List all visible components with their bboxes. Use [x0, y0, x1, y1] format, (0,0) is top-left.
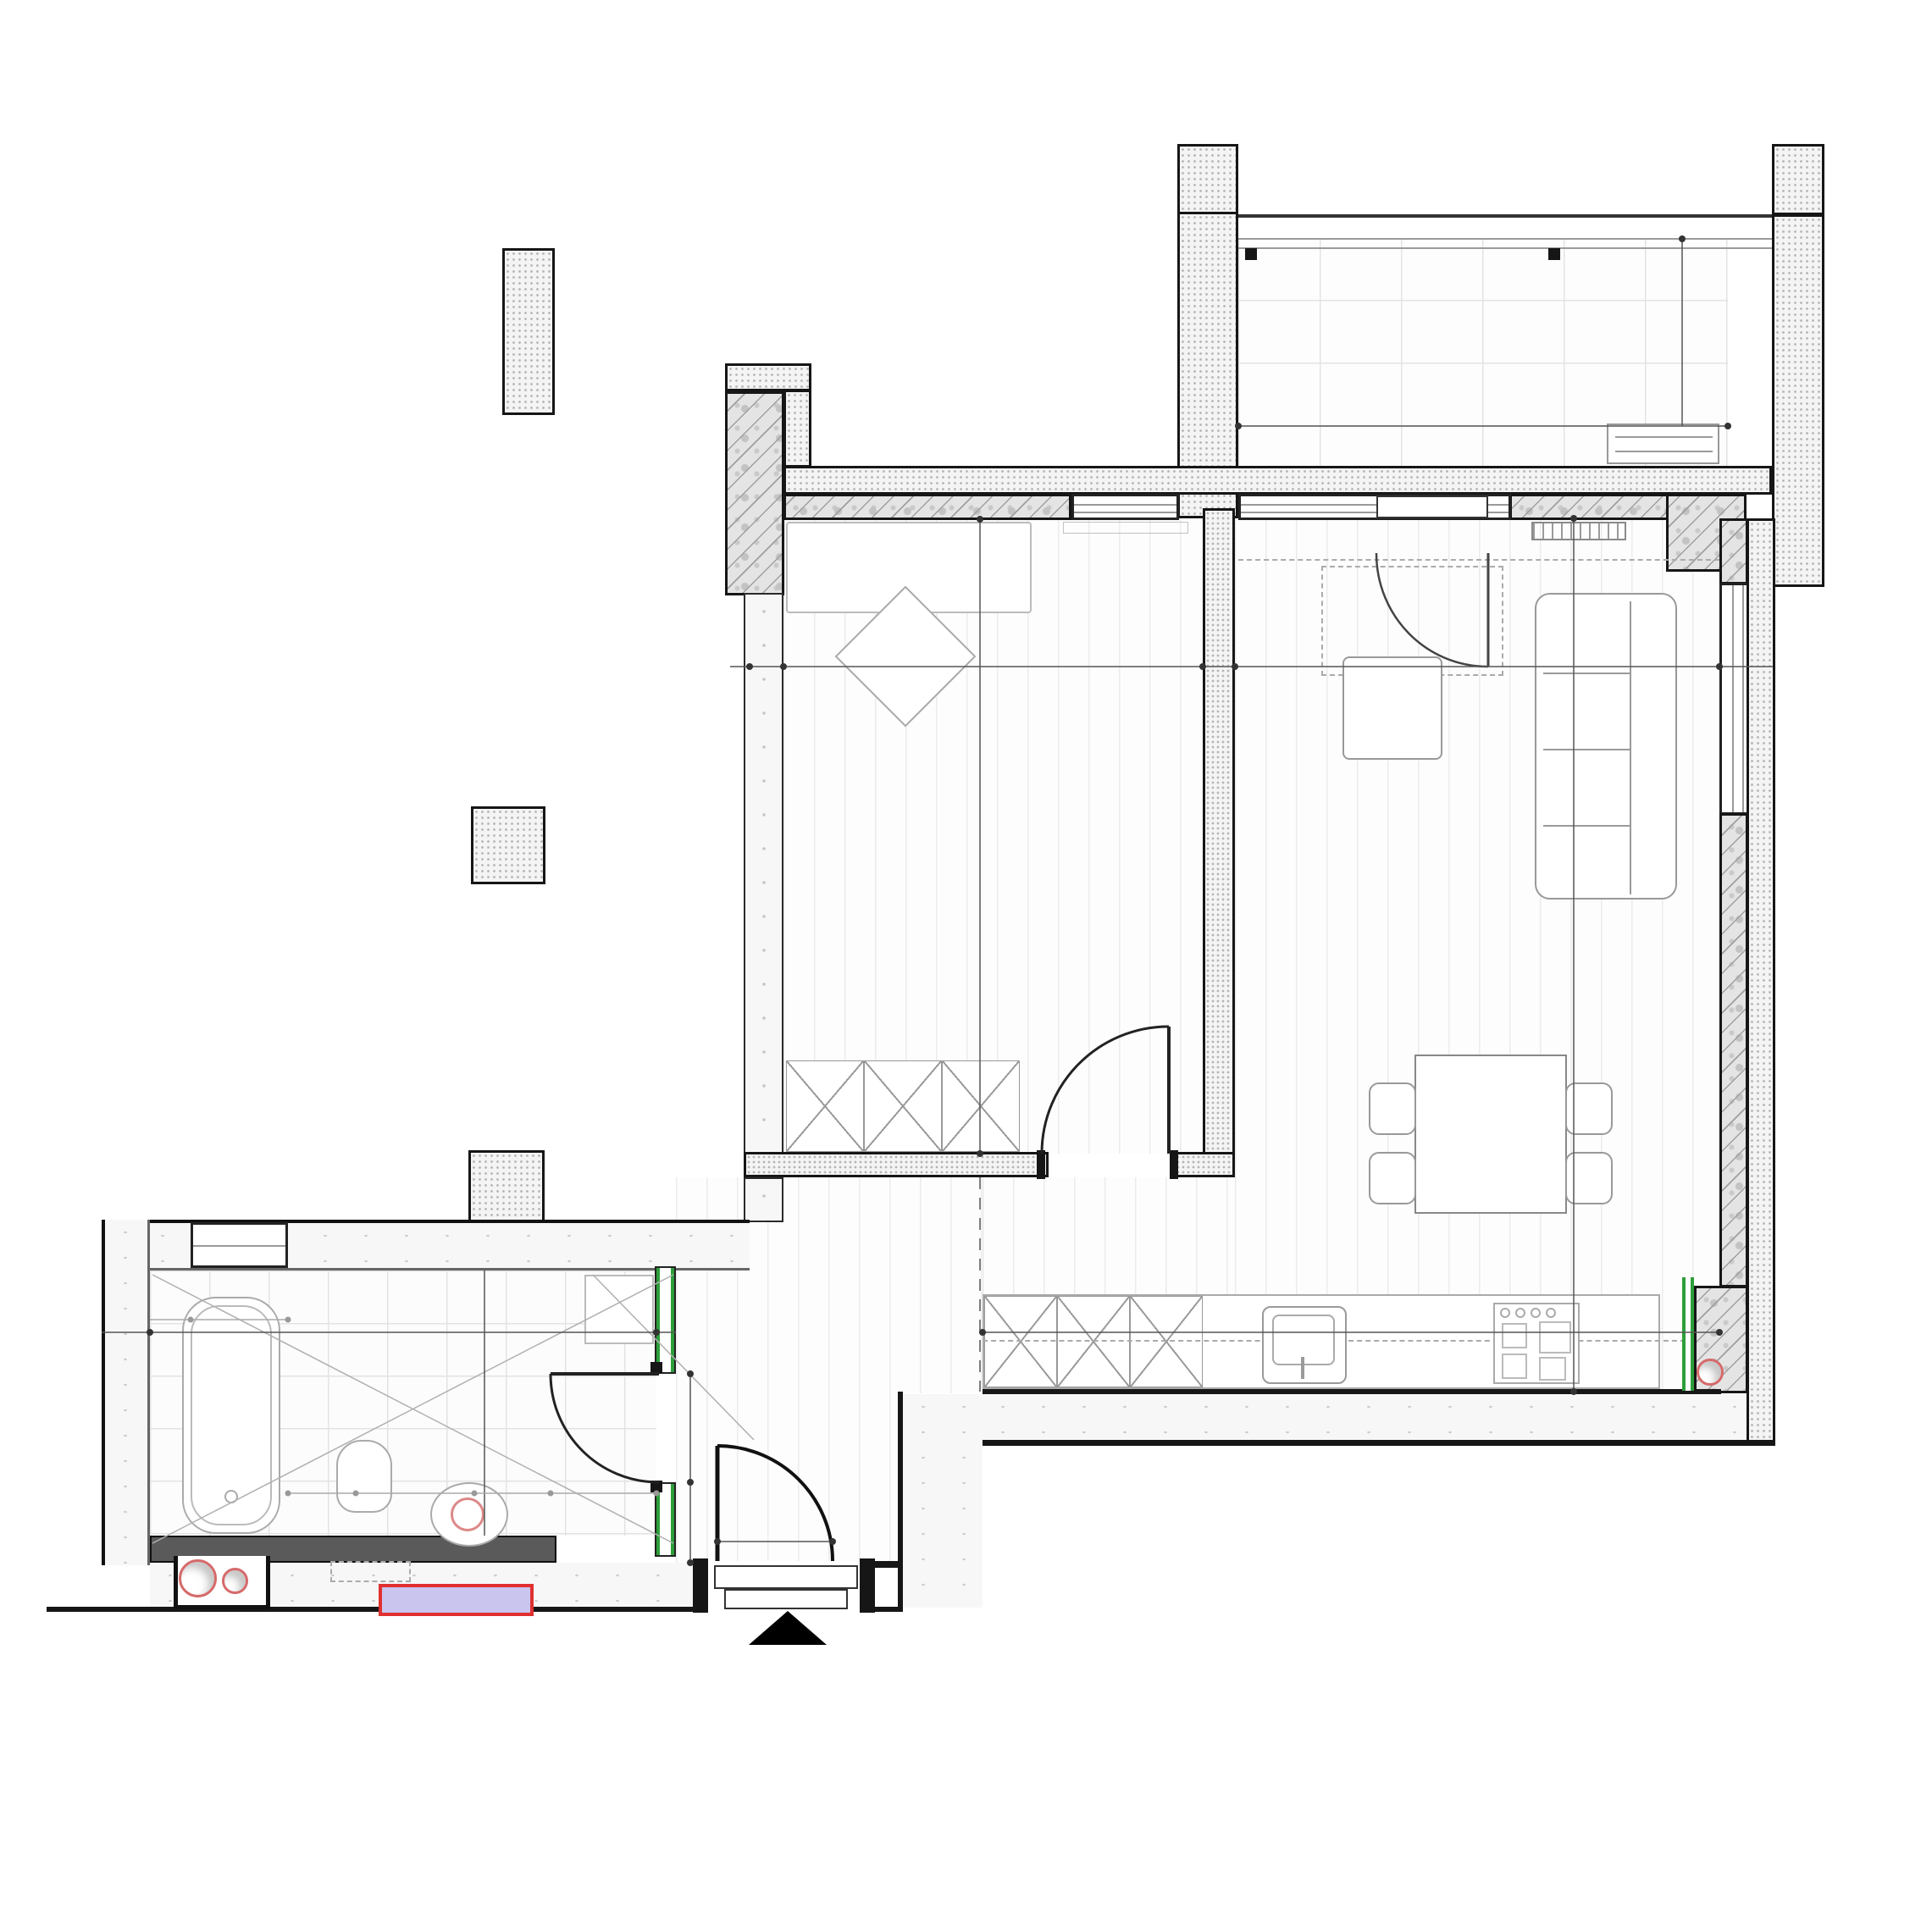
balcon-pier-right-stub — [1772, 144, 1824, 215]
birou-top-window — [1071, 494, 1179, 520]
entry-door-frame-inner — [724, 1589, 848, 1609]
bench-slat — [1615, 451, 1713, 452]
dining-chair — [1565, 1082, 1613, 1135]
kitchen-cabinet-x — [1130, 1296, 1203, 1387]
birou-wardrobe — [942, 1060, 1020, 1152]
right-wall-insulation — [1747, 518, 1775, 1443]
bathtub — [182, 1297, 280, 1534]
living-sofa — [1535, 593, 1677, 900]
hol-exterior-strip — [903, 1394, 983, 1608]
pipe-circle-large — [179, 1559, 217, 1597]
glazing-line — [1732, 585, 1734, 812]
entry-jamb-left — [693, 1558, 708, 1613]
entry-wall-right — [860, 1561, 902, 1568]
birou-floor — [783, 519, 1203, 1154]
living-hidden-line — [1238, 559, 1719, 561]
kitchen-sink — [1262, 1306, 1347, 1384]
baie-top-window — [191, 1222, 288, 1268]
kitchen-cabinet-x — [984, 1296, 1057, 1387]
wall-birou-hol — [744, 1152, 1049, 1177]
baie-vent-dashed — [330, 1561, 411, 1582]
birou-left-wall — [744, 593, 783, 1179]
glazing-line — [193, 1245, 285, 1247]
toilet — [336, 1440, 392, 1513]
wall-birou-hol-right — [1173, 1152, 1235, 1177]
dining-table — [1414, 1055, 1567, 1214]
stove-knob — [1500, 1308, 1510, 1318]
baie-left-wall — [102, 1220, 150, 1565]
balcon-bench — [1607, 423, 1719, 464]
washing-machine — [584, 1275, 654, 1344]
kitchen-pipe-circle — [1697, 1359, 1724, 1386]
hol-floor-lower — [676, 1392, 898, 1563]
kitchen-pipe-shaft — [1682, 1277, 1694, 1391]
top-wall-insulation — [783, 466, 1772, 495]
living-radiator — [1531, 522, 1626, 540]
sofa-line — [1543, 749, 1631, 750]
entry-door-frame-outer — [714, 1565, 858, 1589]
door-jamb — [1170, 1150, 1178, 1179]
entry-marker-triangle — [749, 1611, 827, 1645]
railing-post-left — [1245, 248, 1257, 260]
glazing-line — [1742, 585, 1744, 812]
stove-burner — [1502, 1354, 1527, 1379]
glazing-line — [1074, 504, 1176, 506]
stove-knob — [1531, 1308, 1541, 1318]
wall-baie-hol-lower — [655, 1482, 676, 1557]
dining-chair — [1369, 1082, 1416, 1135]
living-right-wall-lower — [1719, 813, 1748, 1287]
stove-burner — [1502, 1323, 1527, 1348]
balcon-railing-line — [1232, 247, 1779, 249]
balcon-wall-right — [1772, 214, 1824, 587]
neighbor-stub-mid — [471, 806, 545, 884]
kitchen-cabinet-x — [1057, 1296, 1130, 1387]
railing-post-right — [1548, 248, 1560, 260]
stove-burner — [1539, 1357, 1566, 1381]
dining-chair — [1369, 1152, 1416, 1204]
stove-knob — [1546, 1308, 1556, 1318]
neighbor-stub-top — [502, 248, 555, 415]
kitchen-stove — [1493, 1303, 1580, 1384]
balcon-pier-left-stub — [1177, 144, 1238, 215]
birou-top-wall — [783, 494, 1071, 520]
mt-box — [379, 1584, 534, 1616]
pipe-circle-small — [222, 1568, 248, 1594]
sofa-line — [1543, 825, 1631, 827]
kitchen-exterior-strip — [983, 1394, 1747, 1440]
floor-plan — [0, 0, 1932, 1932]
balcon-railing — [1232, 214, 1779, 240]
baie-sink-tap — [451, 1497, 484, 1531]
stove-knob — [1515, 1308, 1525, 1318]
step-insul-b — [783, 390, 811, 468]
door-jamb — [650, 1362, 662, 1374]
balcony-door-panel — [1376, 495, 1488, 518]
birou-wardrobe — [786, 1060, 864, 1152]
bench-slat — [1615, 436, 1713, 438]
sofa-line — [1543, 673, 1631, 674]
coffee-table — [1342, 656, 1442, 760]
step-insul-a — [725, 363, 811, 391]
birou-left-wall-lower — [744, 1177, 783, 1222]
dining-chair — [1565, 1152, 1613, 1204]
door-jamb — [650, 1481, 662, 1492]
stove-burner — [1539, 1321, 1571, 1354]
neighbor-stub-low — [468, 1150, 545, 1224]
door-jamb — [1037, 1150, 1045, 1179]
kitchen-strip-bottom — [898, 1440, 1775, 1446]
wall-birou-living — [1203, 508, 1235, 1177]
birou-window-sill — [1063, 522, 1188, 534]
living-right-wall-upper — [1719, 518, 1748, 584]
sink-faucet — [1301, 1357, 1304, 1379]
glazing-line — [1074, 512, 1176, 513]
wall-baie-hol-upper — [655, 1266, 676, 1374]
hol-floor — [676, 1177, 983, 1393]
birou-left-column — [725, 391, 784, 595]
birou-wardrobe — [864, 1060, 942, 1152]
sofa-line — [1630, 601, 1631, 894]
bathtub-drain — [224, 1490, 238, 1503]
